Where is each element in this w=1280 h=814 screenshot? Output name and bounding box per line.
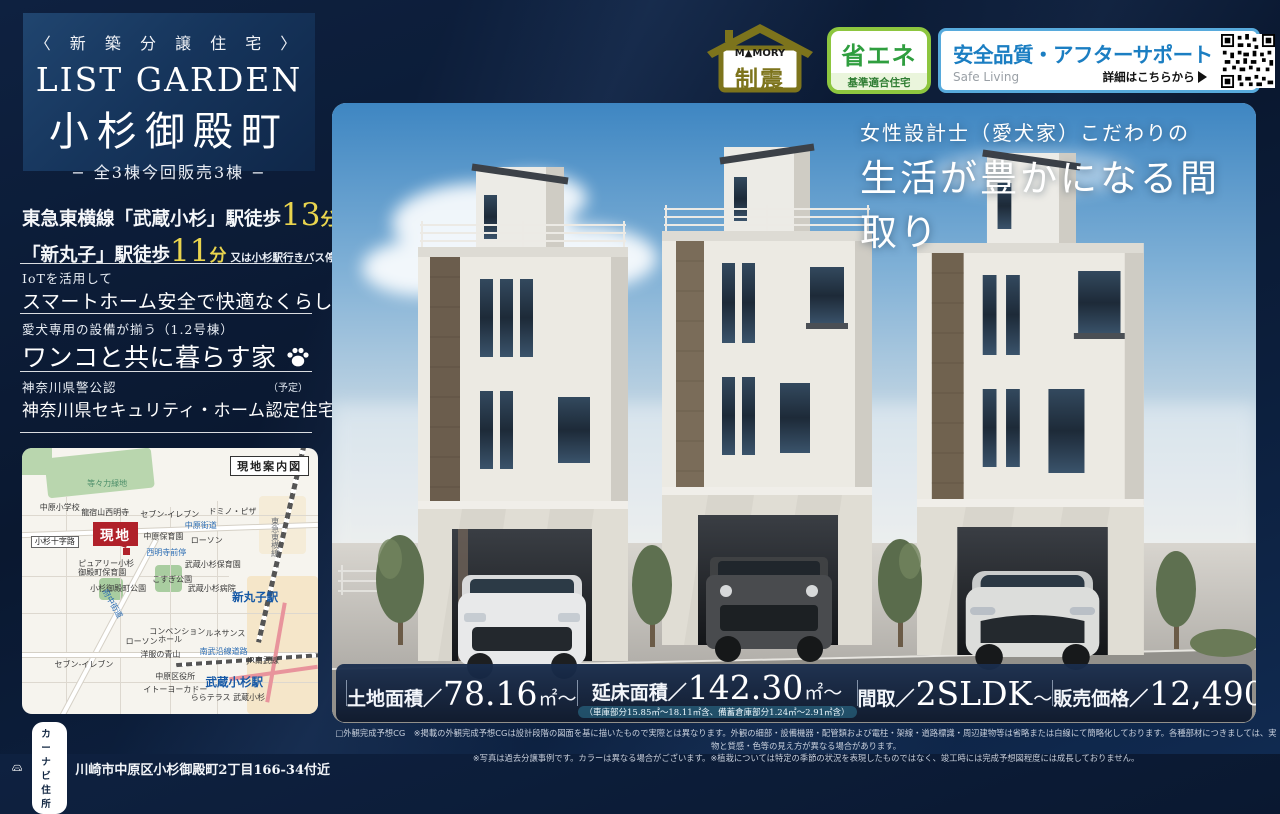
spec-price: 販売価格／12,490万円～（税込） [1053,674,1256,713]
arrow-right-icon [1198,71,1213,83]
spec-value: 78.16 [443,674,537,713]
feature-title: 神奈川県セキュリティ・ホーム認定住宅 [22,396,322,421]
map-label: 小杉十字路 [31,536,79,548]
seismic-badge: M▲MORY 制震 [705,22,815,94]
map-canvas: 等々力緑地中原小学校龍宿山西明寺セブン-イレブンドミノ・ピザ中原街道小杉十字路中… [22,448,318,714]
exterior-cg-photo: 女性設計士（愛犬家）こだわりの 生活が豊かになる間取り 土地面積／78.16㎡～… [332,103,1256,723]
map-label: 東急東横線 [271,517,279,557]
spec-label: 間取／ [858,684,915,711]
map-label: JR南武線 [247,657,279,665]
catch-copy: 女性設計士（愛犬家）こだわりの 生活が豊かになる間取り [860,117,1256,256]
map-label: ららテラス 武蔵小杉 [191,694,265,702]
map-label: 中原街道 [185,522,217,530]
safety-subrow: Safe Living 詳細はこちらから [953,69,1213,85]
spec-label: 延床面積／ [592,678,687,705]
spec-label: 土地面積／ [347,684,442,711]
spec-value: 12,490 [1149,674,1256,713]
map-label: 中原区役所 [155,673,195,681]
map-label: 武蔵小杉保育園 [185,561,241,569]
spec-unit: ～ [1033,684,1052,711]
divider [20,263,312,264]
paw-icon [285,346,311,368]
property-name: 小杉御殿町 [23,99,315,157]
divider [20,432,312,433]
car-icon [12,756,22,780]
qr-code[interactable] [1221,34,1275,88]
map-label: 等々力緑地 [87,480,127,488]
safety-title: 安全品質・アフターサポート [953,38,1213,68]
map-label: 新丸子駅 [232,592,278,604]
station-access: 東急東横線「武蔵小杉」駅徒歩13分 「新丸子」駅徒歩11分又は小杉駅行きバス停徒… [22,198,318,269]
flyer: { "sidebar": { "category": "〈 新 築 分 譲 住 … [0,0,1280,754]
feature-dog: 愛犬専用の設備が揃う（1.2号棟） ワンコと共に暮らす家 [22,319,322,374]
map-label: 中原保育園 [143,533,183,541]
spec-layout: 間取／2SLDK～ [858,674,1053,713]
car-nav-row: カーナビ住所 川崎市中原区小杉御殿町2丁目166-34付近 [12,722,330,814]
feature-security: 神奈川県警公認 （予定） 神奈川県セキュリティ・ホーム認定住宅 [22,377,322,421]
title-panel: 〈 新 築 分 譲 住 宅 〉 LIST GARDEN 小杉御殿町 − 全3棟今… [23,13,315,171]
divider [20,371,312,372]
map-label: ルネサンス [206,630,246,638]
feature-title-text: ワンコと共に暮らす家 [22,343,277,372]
map-label: ホール [158,636,182,644]
safe-living-label: Safe Living [953,70,1019,84]
map-label: こすぎ公園 [152,576,192,584]
map-label: 洋服の青山 [140,651,180,659]
map-label: 武蔵小杉病院 [188,585,236,593]
map-label: 龍宿山西明寺 [81,509,129,517]
eco-label: 省エネ [831,36,927,71]
car-nav-badge: カーナビ住所 [32,722,67,814]
map-label: ローソン [126,638,158,646]
category-label: 〈 新 築 分 譲 住 宅 〉 [23,30,315,54]
map-label: 武蔵小杉駅 [206,677,264,689]
spec-bar: 土地面積／78.16㎡～ 延床面積／142.30㎡～ （車庫部分15.85㎡～1… [336,664,1252,722]
safety-banner[interactable]: 安全品質・アフターサポート Safe Living 詳細はこちらから [938,28,1260,93]
spec-unit: ㎡～ [539,684,577,711]
map-label: セブン-イレブン [140,511,199,519]
area-map: 現地案内図 現地 等々力緑地中原小学校龍宿山西明寺セブン-イレブンドミノ・ピザ中… [22,448,318,714]
feature-lead: IoTを活用して [22,268,322,287]
mamory-logo: M▲MORY [705,48,815,59]
details-cta-text: 詳細はこちらから [1103,70,1195,84]
map-label: 小杉御殿町公園 [90,585,146,593]
eco-badge: 省エネ 基準適合住宅 [827,27,931,94]
spec-unit: ㎡～ [804,678,842,705]
brand-name: LIST GARDEN [23,60,315,99]
sidebar: 〈 新 築 分 譲 住 宅 〉 LIST GARDEN 小杉御殿町 − 全3棟今… [0,0,330,754]
disclaimer: □外観完成予想CG ※掲載の外観完成予想CGは設計段階の図面を基に描いたもので実… [332,727,1280,765]
car-nav-address: 川崎市中原区小杉御殿町2丁目166-34付近 [75,759,330,778]
spec-value: 142.30 [688,668,803,707]
disclaimer-line-1: □外観完成予想CG ※掲載の外観完成予想CGは設計段階の図面を基に描いたもので実… [332,727,1280,752]
access-minutes: 13 [281,197,320,233]
catch-main: 生活が豊かになる間取り [860,148,1256,256]
spec-floor-area: 延床面積／142.30㎡～ （車庫部分15.85㎡～18.11㎡含、備蓄倉庫部分… [578,668,857,718]
access-line-1: 東急東横線「武蔵小杉」駅徒歩13分 [22,198,318,234]
map-label: 中原小学校 [40,504,80,512]
spec-land-area: 土地面積／78.16㎡～ [347,674,577,713]
spec-label: 販売価格／ [1053,684,1148,711]
map-label: ローソン [191,537,223,545]
map-label: セブン-イレブン [55,661,114,669]
units-count: − 全3棟今回販売3棟 − [23,159,315,183]
map-label: 西明寺前停 [146,549,186,557]
feature-smart-home: IoTを活用して スマートホーム安全で快適なくらし [22,268,322,314]
feature-title: スマートホーム安全で快適なくらし [22,287,322,314]
eco-sublabel: 基準適合住宅 [831,73,927,92]
spec-value: 2SLDK [916,674,1033,713]
seismic-label: 制震 [705,60,815,94]
map-label: 南武沿線道路 [200,648,248,656]
map-label: ドミノ・ピザ [208,508,256,516]
access-text: 東急東横線「武蔵小杉」駅徒歩 [22,209,281,230]
details-cta[interactable]: 詳細はこちらから [1103,69,1213,85]
feature-note: （予定） [268,379,308,394]
divider [20,313,312,314]
map-label: ピュアリー小杉 [78,560,134,568]
catch-lead: 女性設計士（愛犬家）こだわりの [860,117,1256,146]
feature-title: ワンコと共に暮らす家 [22,338,322,374]
spec-note: （車庫部分15.85㎡～18.11㎡含、備蓄倉庫部分1.24㎡～2.91㎡含） [578,706,857,718]
map-label: 御殿町保育園 [78,569,126,577]
feature-lead: 愛犬専用の設備が揃う（1.2号棟） [22,319,322,338]
safety-text: 安全品質・アフターサポート Safe Living 詳細はこちらから [953,38,1213,85]
